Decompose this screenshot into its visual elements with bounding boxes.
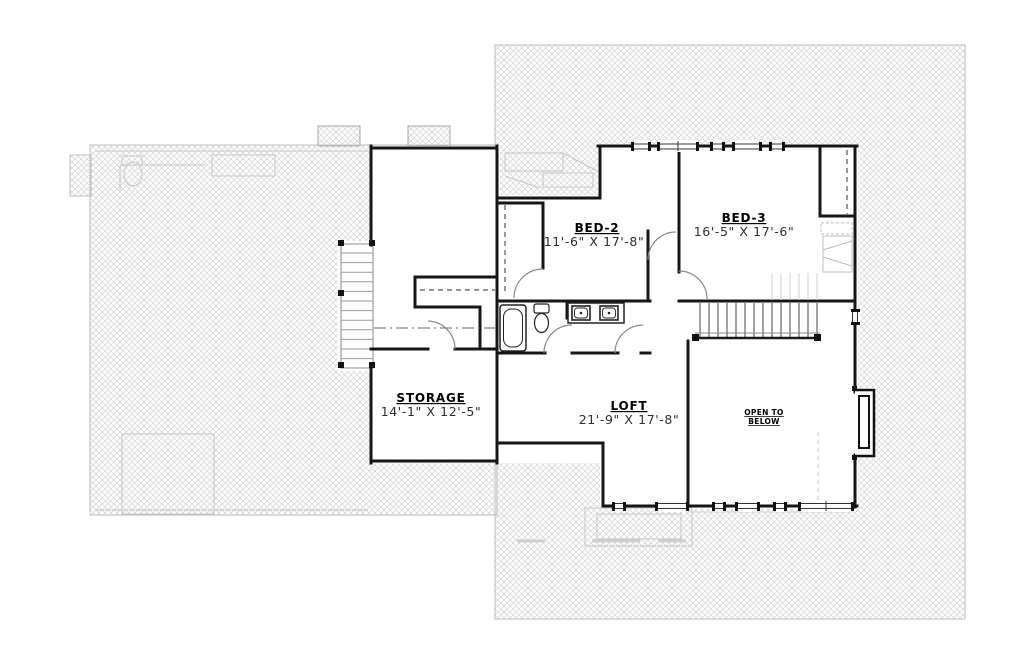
open-to-below-label-line2: BELOW [748, 417, 780, 426]
floor-plan-canvas: BED-2 11'-6" X 17'-8" BED-3 16'-5" X 17'… [0, 0, 1024, 663]
hatch-left-bump [70, 155, 91, 196]
bathtub-icon [500, 305, 526, 351]
storage-dims: 14'-1" X 12'-5" [381, 404, 482, 419]
bed2-label: BED-2 [575, 221, 620, 235]
storage-label: STORAGE [396, 391, 465, 405]
floor-plate [338, 144, 875, 509]
stairs-upper-left [338, 240, 375, 368]
bay-window [852, 386, 874, 460]
open-to-below-label-line1: OPEN TO [744, 408, 783, 417]
floor-plan-drawing: BED-2 11'-6" X 17'-8" BED-3 16'-5" X 17'… [0, 0, 1024, 663]
window [735, 500, 760, 512]
bed3-label: BED-3 [722, 211, 767, 225]
railing-post-right [814, 334, 821, 341]
chimney-hatch-2 [408, 126, 450, 146]
toilet-icon [534, 304, 549, 333]
bed2-dims: 11'-6" X 17'-8" [544, 234, 645, 249]
window [631, 140, 651, 152]
window [655, 500, 689, 512]
window [798, 500, 854, 512]
chimney-hatch-1 [318, 126, 360, 146]
loft-label: LOFT [610, 399, 647, 413]
loft-dims: 21'-9" X 17'-8" [579, 412, 680, 427]
bed3-dims: 16'-5" X 17'-6" [694, 224, 795, 239]
window [657, 140, 699, 152]
railing-post-left [692, 334, 699, 341]
window [732, 140, 762, 152]
double-vanity-icon [568, 303, 624, 323]
